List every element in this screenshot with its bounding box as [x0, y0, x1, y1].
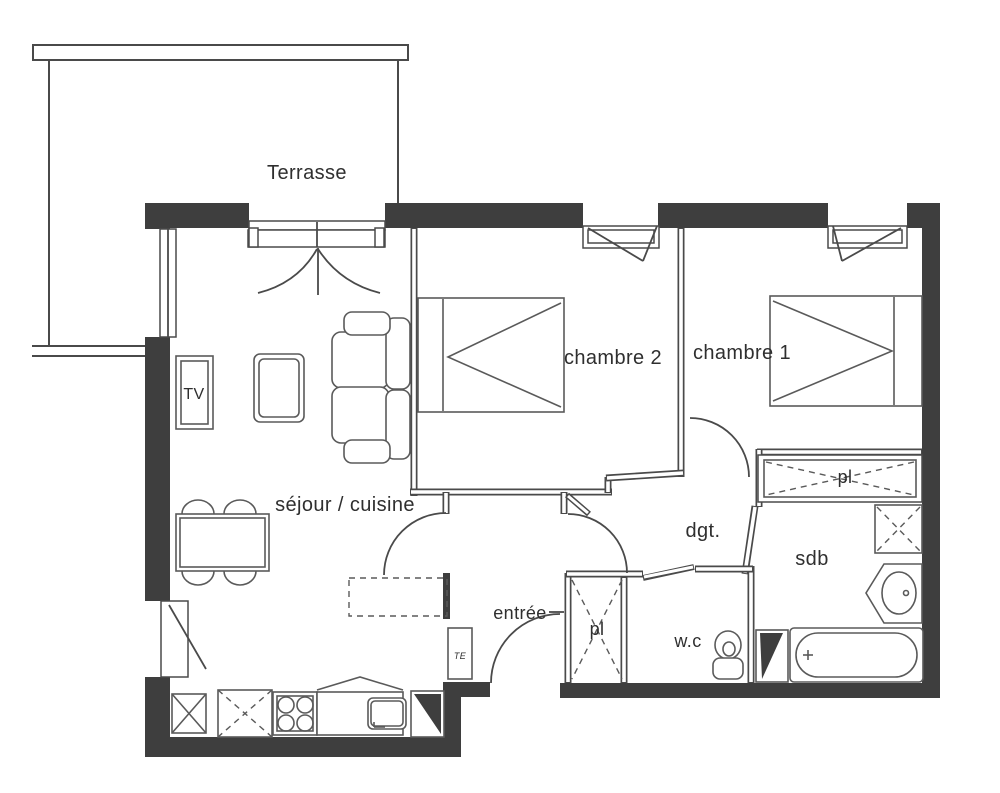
- terrace-outline: [32, 45, 408, 356]
- label-closet-hallway: pl: [838, 467, 853, 487]
- fridge-icon: [411, 691, 444, 737]
- bathroom-cabinet: [875, 505, 922, 553]
- kitchen-sink-icon: [368, 698, 406, 729]
- label-entry: entrée: [493, 603, 546, 623]
- bathtub-icon: [790, 628, 923, 682]
- toilet-icon: [713, 631, 743, 679]
- label-electrical-panel: TE: [454, 651, 467, 661]
- label-closet-entry: pl: [590, 619, 605, 639]
- bedroom1-window: [828, 226, 907, 261]
- bed-bedroom1: [770, 296, 922, 406]
- bed-bedroom2: [418, 298, 564, 412]
- label-hallway: dgt.: [686, 520, 721, 542]
- sofa: [332, 312, 410, 463]
- washbasin-icon: [866, 564, 922, 623]
- label-toilet: w.c: [673, 631, 701, 651]
- kitchen-counter: [172, 677, 444, 737]
- floor-plan-drawing: Terrasse séjour / cuisine chambre 2 cham…: [0, 0, 1000, 793]
- bedroom2-window: [583, 226, 659, 261]
- floor-plan: Terrasse séjour / cuisine chambre 2 cham…: [0, 0, 1000, 793]
- terrace-french-door: [248, 221, 385, 295]
- label-living-kitchen: séjour / cuisine: [275, 494, 415, 516]
- cooktop-icon: [273, 692, 317, 735]
- label-terrace: Terrasse: [267, 162, 347, 184]
- technical-duct: [756, 630, 788, 682]
- living-room-side-window: [160, 229, 176, 337]
- living-room-side-door: [161, 601, 206, 677]
- coffee-table: [254, 354, 304, 422]
- label-bathroom: sdb: [795, 548, 828, 570]
- dining-table: [176, 500, 269, 585]
- label-bedroom1: chambre 1: [693, 342, 791, 364]
- label-bedroom2: chambre 2: [564, 347, 662, 369]
- kitchen-bar-dashed: [349, 578, 447, 616]
- label-tv: TV: [183, 386, 204, 403]
